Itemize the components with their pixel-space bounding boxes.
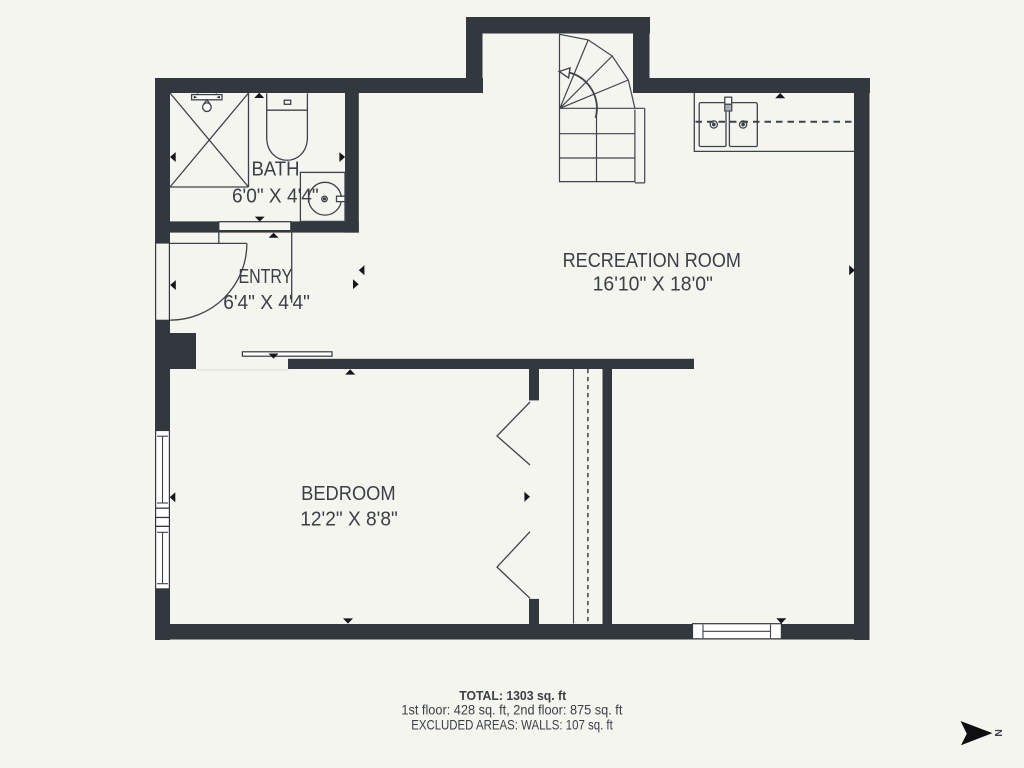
svg-text:RECREATION ROOM: RECREATION ROOM <box>563 249 741 272</box>
svg-text:6'4" X 4'4": 6'4" X 4'4" <box>223 291 310 314</box>
svg-text:BATH: BATH <box>251 158 299 181</box>
svg-text:BEDROOM: BEDROOM <box>301 482 396 505</box>
svg-text:16'10" X 18'0": 16'10" X 18'0" <box>593 273 713 296</box>
svg-text:N: N <box>992 729 1004 737</box>
svg-text:1st floor: 428 sq. ft, 2nd flo: 1st floor: 428 sq. ft, 2nd floor: 875 sq… <box>401 703 622 718</box>
svg-text:ENTRY: ENTRY <box>238 265 292 288</box>
svg-text:12'2" X 8'8": 12'2" X 8'8" <box>300 508 398 531</box>
svg-text:EXCLUDED AREAS: WALLS: 107 sq.: EXCLUDED AREAS: WALLS: 107 sq. ft <box>411 718 613 733</box>
svg-text:6'0" X 4'4": 6'0" X 4'4" <box>232 185 319 208</box>
svg-text:TOTAL: 1303 sq. ft: TOTAL: 1303 sq. ft <box>459 689 567 703</box>
